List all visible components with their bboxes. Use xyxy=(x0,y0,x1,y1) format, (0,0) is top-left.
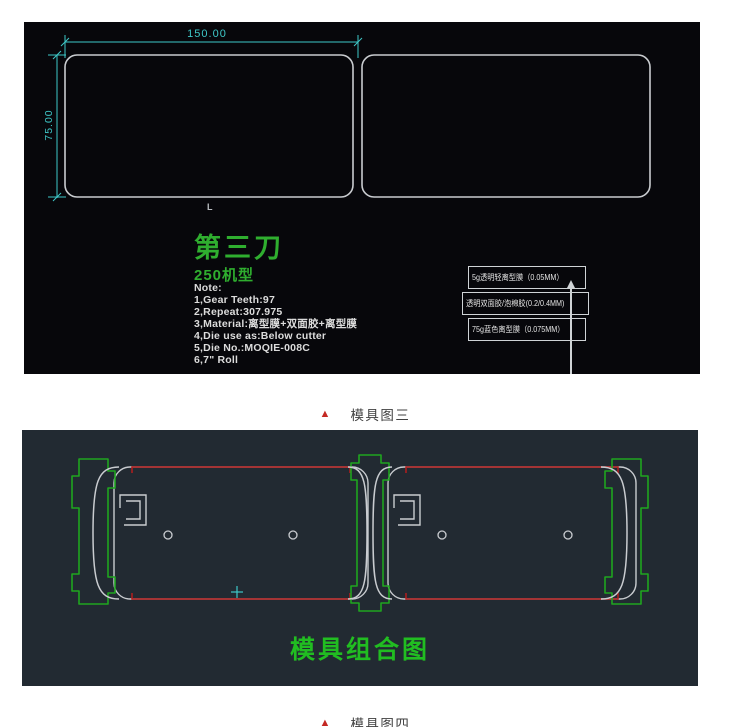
clip-tab-right xyxy=(394,495,420,525)
middle-bracket-green-outline xyxy=(351,455,389,611)
registration-mark: L xyxy=(207,202,213,212)
mold-drawing-3-panel: 150.00 75.00 L 第三刀 250机型 Note: 1,Gear Te… xyxy=(24,22,700,374)
assembly-cavity-left-outline xyxy=(114,467,368,599)
die-cavity-left-outline xyxy=(65,55,353,197)
figure-3-caption: ▲ 模具图三 xyxy=(0,404,730,424)
figure-4-caption-text: 模具图四 xyxy=(350,713,410,727)
note-block: Note: 1,Gear Teeth:97 2,Repeat:307.975 3… xyxy=(194,282,357,366)
red-triangle-icon: ▲ xyxy=(320,406,331,422)
mold-assembly-panel: 模具组合图 xyxy=(22,430,698,686)
note-line: 5,Die No.:MOQIE-008C xyxy=(194,342,357,354)
cut-title: 第三刀 xyxy=(194,226,284,265)
die-cavity-right-outline xyxy=(362,55,650,197)
note-line: 4,Die use as:Below cutter xyxy=(194,330,357,342)
material-layer-table: 5g透明轻离型膜（0.05MM） 透明双面胶/泡棉胶(0.2/0.4MM) 75… xyxy=(468,266,598,344)
note-line: 3,Material:离型膜+双面胶+离型膜 xyxy=(194,318,357,330)
red-triangle-icon: ▲ xyxy=(320,715,331,727)
note-line: 2,Repeat:307.975 xyxy=(194,306,357,318)
figure-4-caption: ▲ 模具图四 xyxy=(0,713,730,727)
note-line: 1,Gear Teeth:97 xyxy=(194,294,357,306)
clip-tab-left xyxy=(120,495,146,525)
note-line: 6,7" Roll xyxy=(194,354,357,366)
leader-line xyxy=(570,287,572,374)
assembly-title: 模具组合图 xyxy=(22,630,698,666)
width-dimension-label: 150.00 xyxy=(175,28,239,40)
figure-3-caption-text: 模具图三 xyxy=(350,404,410,424)
assembly-cavity-right-outline xyxy=(388,467,636,599)
layer-row-bottom-liner: 75g蓝色离型膜（0.075MM） xyxy=(468,318,586,341)
note-line: Note: xyxy=(194,282,357,294)
cad-geometry-fig3 xyxy=(24,22,700,374)
crosshair-marker xyxy=(231,586,243,598)
article-page: 150.00 75.00 L 第三刀 250机型 Note: 1,Gear Te… xyxy=(0,0,730,727)
height-dimension-label: 75.00 xyxy=(43,99,55,151)
